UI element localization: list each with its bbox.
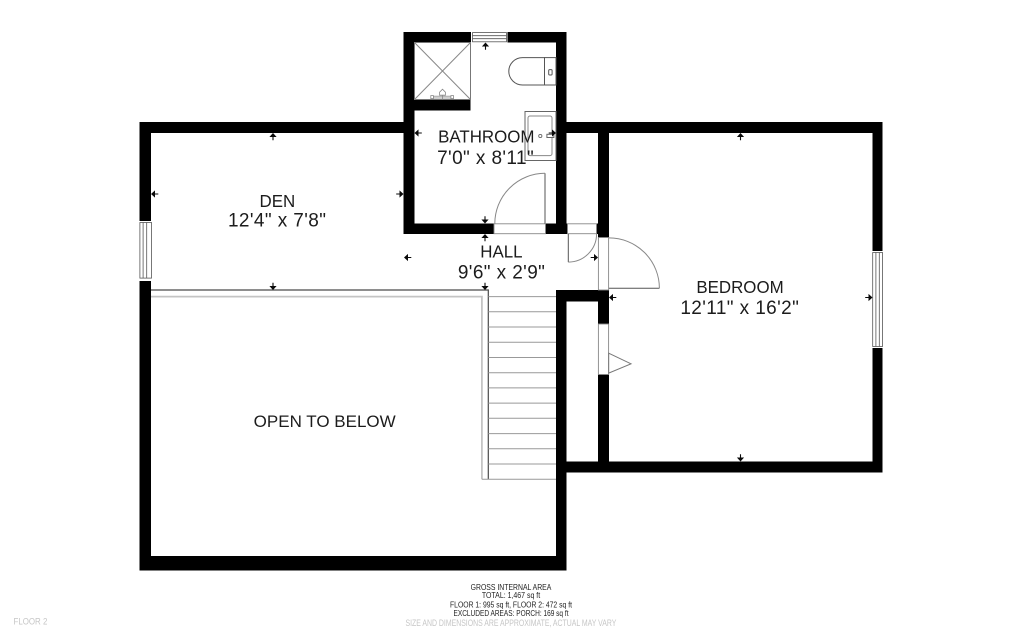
svg-text:OPEN TO BELOW: OPEN TO BELOW <box>254 412 396 431</box>
svg-text:DEN: DEN <box>260 191 296 212</box>
svg-text:7'0" x 8'11": 7'0" x 8'11" <box>437 148 534 169</box>
svg-text:12'4" x 7'8": 12'4" x 7'8" <box>228 210 326 231</box>
svg-text:HALL: HALL <box>480 241 523 262</box>
svg-text:9'6" x 2'9": 9'6" x 2'9" <box>458 262 545 283</box>
svg-text:SIZE AND DIMENSIONS ARE APPROX: SIZE AND DIMENSIONS ARE APPROXIMATE, ACT… <box>405 618 616 628</box>
svg-text:FLOOR 2: FLOOR 2 <box>14 616 48 627</box>
svg-text:12'11" x 16'2": 12'11" x 16'2" <box>680 298 799 319</box>
svg-text:BATHROOM: BATHROOM <box>438 126 534 147</box>
svg-text:BEDROOM: BEDROOM <box>696 277 783 298</box>
svg-text:EXCLUDED AREAS: PORCH: 169 sq: EXCLUDED AREAS: PORCH: 169 sq ft <box>453 608 568 618</box>
